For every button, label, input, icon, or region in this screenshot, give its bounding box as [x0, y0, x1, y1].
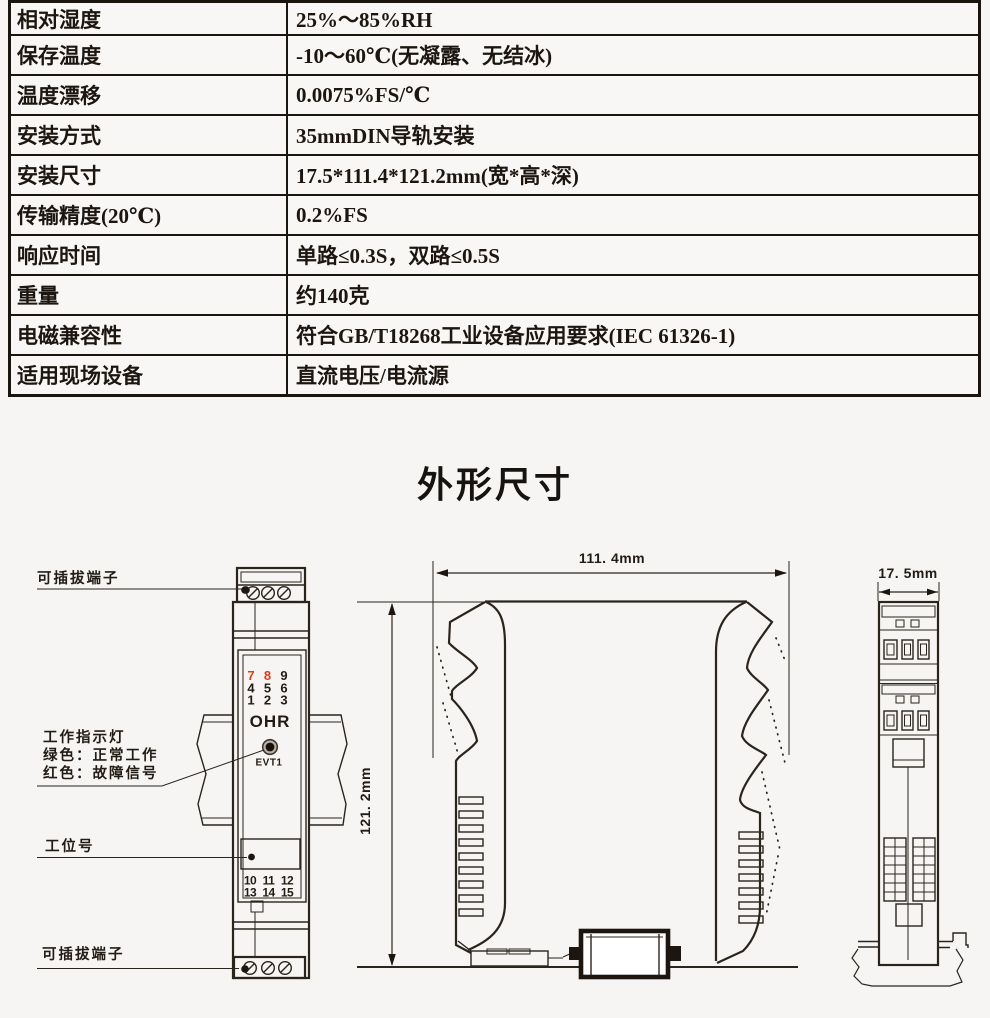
table-row: 重量约140克 — [10, 275, 980, 315]
width-dimension: 111. 4mm — [433, 550, 789, 758]
terminal-slots-top — [884, 640, 929, 659]
status-led — [263, 740, 278, 755]
bottom-terminal-label: 可插拔端子 — [42, 945, 125, 963]
station-label-box — [241, 839, 300, 869]
spec-value: 符合GB/T18268工业设备应用要求(IEC 61326-1) — [287, 315, 980, 355]
spec-label: 响应时间 — [10, 235, 288, 275]
rail-clip — [458, 941, 581, 966]
spec-value: 约140克 — [287, 275, 980, 315]
station-leader-dot — [248, 854, 255, 861]
spec-label: 电磁兼容性 — [10, 315, 288, 355]
terminal-numbers-bottom: 10 11 12 13 14 15 — [244, 874, 294, 900]
vent-grid-right — [913, 838, 935, 901]
spec-value: 单路≤0.3S，双路≤0.5S — [287, 235, 980, 275]
table-row: 安装方式35mmDIN导轨安装 — [10, 115, 980, 155]
bottom-terminal-block — [234, 957, 305, 978]
spec-value: 35mmDIN导轨安装 — [287, 115, 980, 155]
end-housing — [879, 602, 938, 965]
spec-label: 温度漂移 — [10, 75, 288, 115]
terminal-slots-bottom — [884, 711, 929, 730]
indicator-label-title: 工作指示灯 — [43, 728, 126, 746]
datasheet-page: 相对湿度25%～85%RH 保存温度-10～60℃(无凝露、无结冰) 温度漂移0… — [0, 0, 990, 1018]
svg-text:3: 3 — [280, 693, 287, 708]
height-dimension: 121. 2mm — [357, 603, 396, 966]
spec-value: -10～60℃(无凝露、无结冰) — [287, 35, 980, 75]
svg-text:13: 13 — [244, 886, 257, 900]
module-body — [233, 602, 309, 978]
latch-end — [893, 739, 924, 767]
vent-grid-left — [884, 838, 906, 901]
side-view: 111. 4mm 121. 2mm — [357, 550, 798, 977]
depth-dimension: 17. 5mm — [878, 565, 939, 601]
spec-label: 相对湿度 — [10, 2, 288, 36]
table-row: 相对湿度25%～85%RH — [10, 2, 980, 36]
indicator-callout: 工作指示灯 绿色：正常工作 红色：故障信号 — [37, 728, 264, 786]
terminal-numbers-top: 7 8 9 4 5 6 1 2 3 — [247, 668, 287, 708]
rail-cross-section — [852, 933, 968, 986]
table-row: 传输精度(20℃)0.2%FS — [10, 195, 980, 235]
svg-text:15: 15 — [281, 886, 294, 900]
spec-label: 适用现场设备 — [10, 355, 288, 396]
din-rail — [197, 715, 347, 825]
spec-value: 17.5*111.4*121.2mm(宽*高*深) — [287, 155, 980, 195]
svg-text:2: 2 — [264, 693, 271, 708]
spec-value: 0.2%FS — [287, 195, 980, 235]
top-terminal-block — [237, 568, 305, 602]
station-label: 工位号 — [45, 837, 95, 855]
height-dim-label: 121. 2mm — [357, 767, 373, 835]
width-dim-label: 111. 4mm — [579, 550, 645, 566]
spec-label: 重量 — [10, 275, 288, 315]
indicator-label-green: 绿色：正常工作 — [43, 746, 159, 764]
table-row: 电磁兼容性符合GB/T18268工业设备应用要求(IEC 61326-1) — [10, 315, 980, 355]
table-row: 温度漂移0.0075%FS/℃ — [10, 75, 980, 115]
indicator-label-red: 红色：故障信号 — [43, 764, 159, 782]
spec-label: 传输精度(20℃) — [10, 195, 288, 235]
end-view: 17. 5mm — [852, 565, 968, 986]
table-row: 适用现场设备直流电压/电流源 — [10, 355, 980, 396]
release-latch — [569, 931, 681, 977]
spec-table: 相对湿度25%～85%RH 保存温度-10～60℃(无凝露、无结冰) 温度漂移0… — [8, 0, 981, 397]
front-view: 可插拔端子 — [37, 568, 347, 978]
housing-profile — [357, 602, 786, 964]
spec-label: 安装方式 — [10, 115, 288, 155]
depth-dim-label: 17. 5mm — [878, 565, 938, 581]
station-callout: 工位号 — [37, 837, 247, 858]
table-row: 保存温度-10～60℃(无凝露、无结冰) — [10, 35, 980, 75]
spec-value: 0.0075%FS/℃ — [287, 75, 980, 115]
spec-label: 安装尺寸 — [10, 155, 288, 195]
spec-value: 25%～85%RH — [287, 2, 980, 36]
spec-value: 直流电压/电流源 — [287, 355, 980, 396]
dimension-drawings: 可插拔端子 — [0, 540, 990, 1018]
svg-text:14: 14 — [262, 886, 275, 900]
page-title: 外形尺寸 — [0, 456, 990, 508]
table-row: 响应时间单路≤0.3S，双路≤0.5S — [10, 235, 980, 275]
table-row: 安装尺寸17.5*111.4*121.2mm(宽*高*深) — [10, 155, 980, 195]
bottom-terminal-callout: 可插拔端子 — [37, 945, 239, 969]
top-terminal-label: 可插拔端子 — [37, 569, 120, 587]
front-panel: 7 8 9 4 5 6 1 2 3 OHR EVT1 — [241, 668, 300, 900]
svg-text:1: 1 — [247, 693, 254, 708]
vent-slats-left — [459, 797, 483, 916]
terminal-screws — [247, 587, 291, 600]
terminal-screws — [244, 962, 292, 975]
spec-label: 保存温度 — [10, 35, 288, 75]
brand-logo: OHR — [250, 712, 291, 731]
led-tag: EVT1 — [255, 758, 282, 769]
